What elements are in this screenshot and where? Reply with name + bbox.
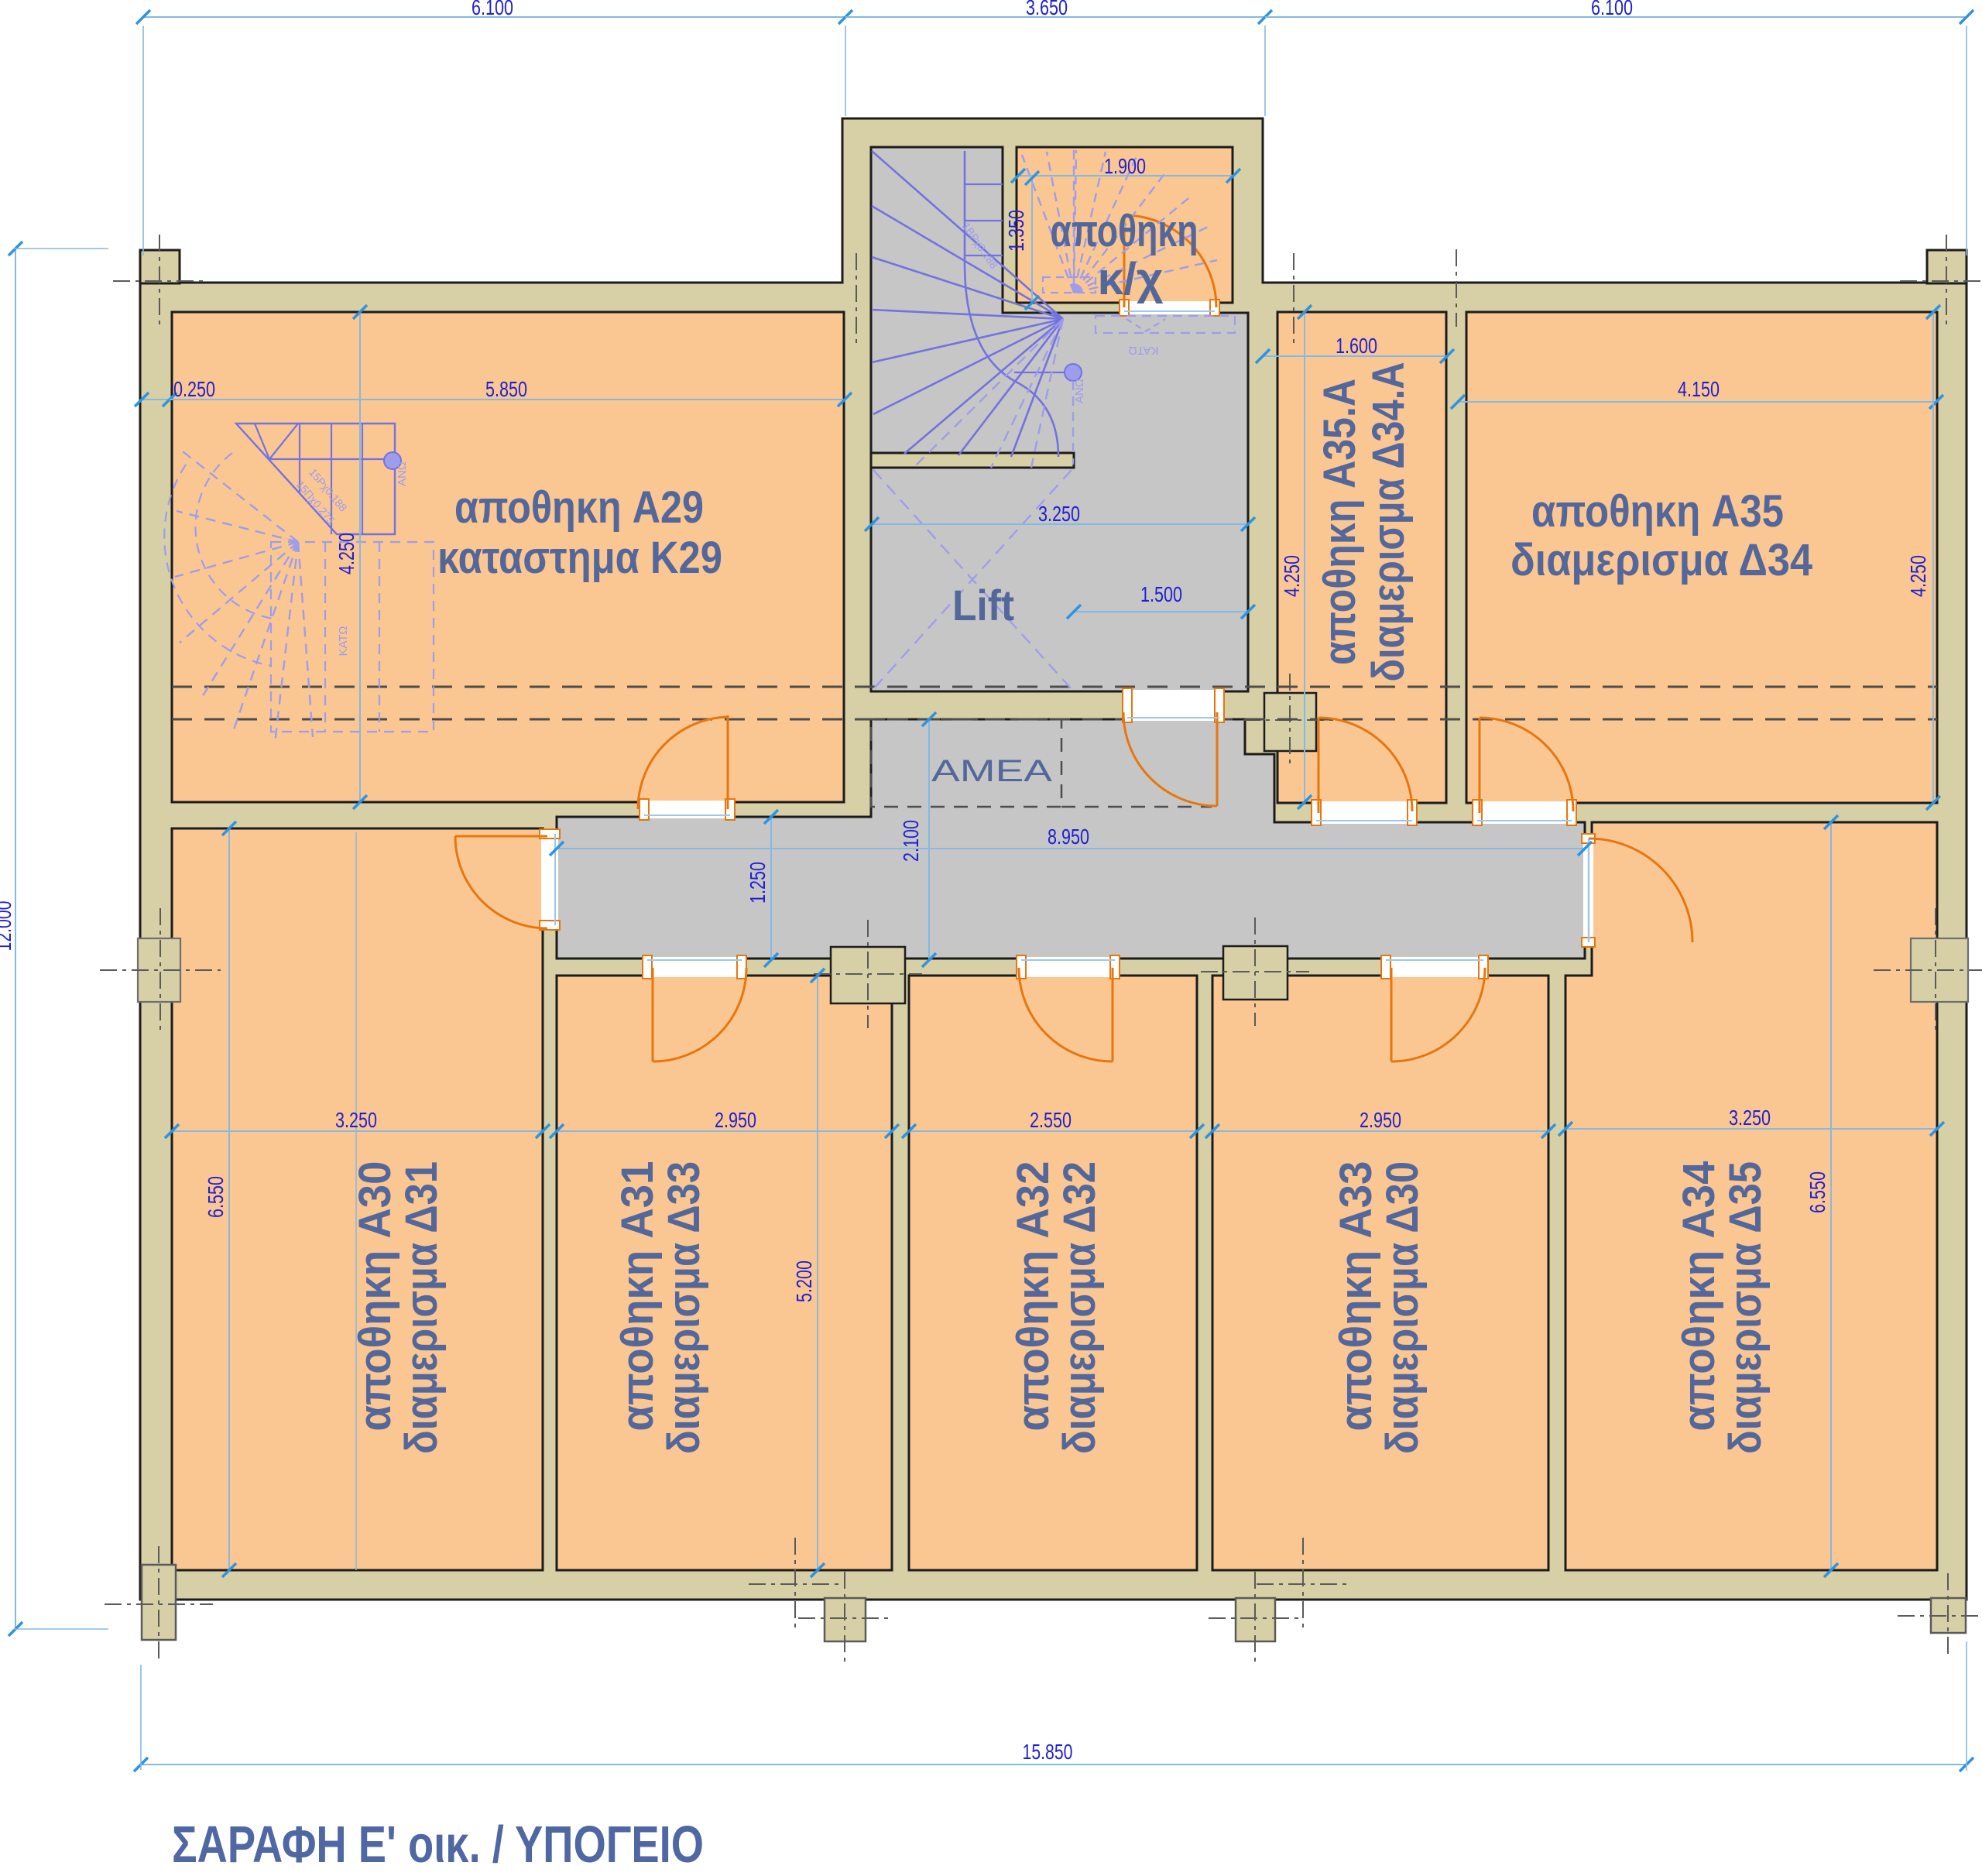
svg-text:αποθηκη A31: αποθηκη A31 [612,1161,663,1432]
svg-text:3.250: 3.250 [335,1108,377,1132]
svg-text:διαμερισμα Δ30: διαμερισμα Δ30 [1377,1161,1428,1454]
svg-text:ΚΑΤΩ: ΚΑΤΩ [337,626,350,656]
svg-text:ΑΝΩ: ΑΝΩ [1073,379,1086,403]
svg-text:αποθηκη A35: αποθηκη A35 [1531,486,1784,537]
svg-text:AMEA: AMEA [931,754,1052,788]
svg-text:ΑΝΩ: ΑΝΩ [396,461,409,486]
svg-text:5.200: 5.200 [792,1260,816,1302]
svg-text:αποθηκη A33: αποθηκη A33 [1331,1161,1381,1432]
svg-text:αποθηκη: αποθηκη [1051,206,1198,256]
svg-text:2.950: 2.950 [1360,1108,1401,1132]
svg-text:4.150: 4.150 [1678,377,1720,401]
svg-text:4.250: 4.250 [1280,555,1304,597]
svg-text:6.550: 6.550 [1805,1171,1829,1213]
svg-text:3.250: 3.250 [1729,1106,1771,1130]
svg-text:αποθηκη A32: αποθηκη A32 [1008,1161,1058,1432]
svg-text:διαμερισμα Δ34.A: διαμερισμα Δ34.A [1363,362,1414,682]
svg-text:Lift: Lift [952,581,1014,629]
svg-text:6.550: 6.550 [204,1176,228,1218]
svg-text:3.250: 3.250 [1038,502,1080,526]
svg-text:2.100: 2.100 [899,820,923,862]
svg-text:διαμερισμα Δ35: διαμερισμα Δ35 [1720,1161,1771,1454]
svg-text:2.550: 2.550 [1030,1108,1072,1132]
svg-text:4.250: 4.250 [334,533,358,574]
svg-text:1.350: 1.350 [1004,210,1028,252]
svg-text:1.600: 1.600 [1336,334,1377,358]
svg-text:αποθηκη A35.A: αποθηκη A35.A [1315,379,1365,665]
svg-text:15.850: 15.850 [1023,1740,1073,1764]
svg-text:ΚΑΤΩ: ΚΑΤΩ [1128,344,1158,357]
svg-text:0.250: 0.250 [173,377,215,401]
svg-text:διαμερισμα Δ33: διαμερισμα Δ33 [659,1161,709,1454]
svg-text:αποθηκη A34: αποθηκη A34 [1674,1161,1724,1432]
svg-text:διαμερισμα Δ32: διαμερισμα Δ32 [1054,1161,1105,1454]
svg-text:διαμερισμα Δ31: διαμερισμα Δ31 [396,1161,447,1454]
svg-text:6.100: 6.100 [471,0,513,19]
svg-text:1.900: 1.900 [1104,154,1146,178]
svg-text:αποθηκη A30: αποθηκη A30 [350,1161,400,1432]
svg-text:3.650: 3.650 [1026,0,1068,19]
svg-text:12.000: 12.000 [0,901,15,952]
svg-text:6.100: 6.100 [1591,0,1633,19]
svg-text:αποθηκη A29: αποθηκη A29 [454,482,704,533]
svg-text:1.250: 1.250 [746,862,770,904]
svg-text:ΣΑΡΑΦΗ Ε' οικ. / ΥΠΟΓΕΙΟ: ΣΑΡΑΦΗ Ε' οικ. / ΥΠΟΓΕΙΟ [172,1816,704,1874]
svg-text:1.500: 1.500 [1140,582,1182,606]
svg-text:διαμερισμα Δ34: διαμερισμα Δ34 [1511,535,1812,585]
svg-text:κ/χ: κ/χ [1098,254,1164,304]
svg-text:8.950: 8.950 [1048,825,1089,849]
svg-text:καταστημα K29: καταστημα K29 [437,533,722,583]
svg-text:2.950: 2.950 [715,1108,756,1132]
svg-text:4.250: 4.250 [1906,555,1930,597]
svg-text:5.850: 5.850 [485,377,527,401]
